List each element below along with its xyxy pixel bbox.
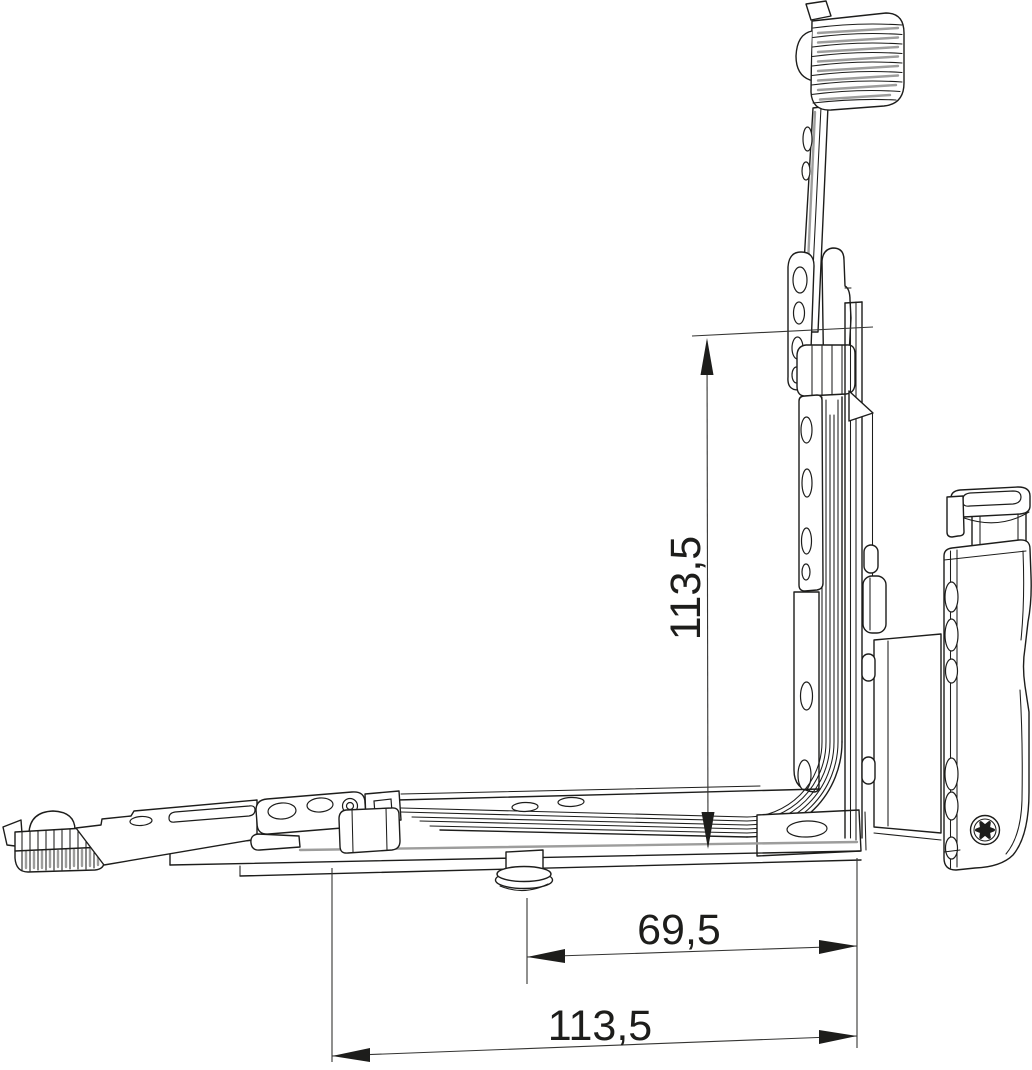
sash-profile-strip (794, 592, 819, 792)
dimension-horizontal-inner-label: 69,5 (637, 906, 721, 954)
toothed-slider-block-top (806, 1, 831, 20)
technical-drawing-canvas: 113,5 69,5 113,5 (0, 0, 1032, 1070)
drawing-background (0, 0, 1032, 1070)
hinge-tab (863, 576, 886, 633)
dimension-horizontal-outer-label: 113,5 (548, 1002, 652, 1050)
tilt-lock-housing (797, 345, 855, 396)
corner-hinge-drawing: 113,5 69,5 113,5 (0, 0, 1032, 1070)
dimension-vertical-label: 113,5 (662, 536, 710, 640)
rail-clamp (339, 808, 400, 853)
